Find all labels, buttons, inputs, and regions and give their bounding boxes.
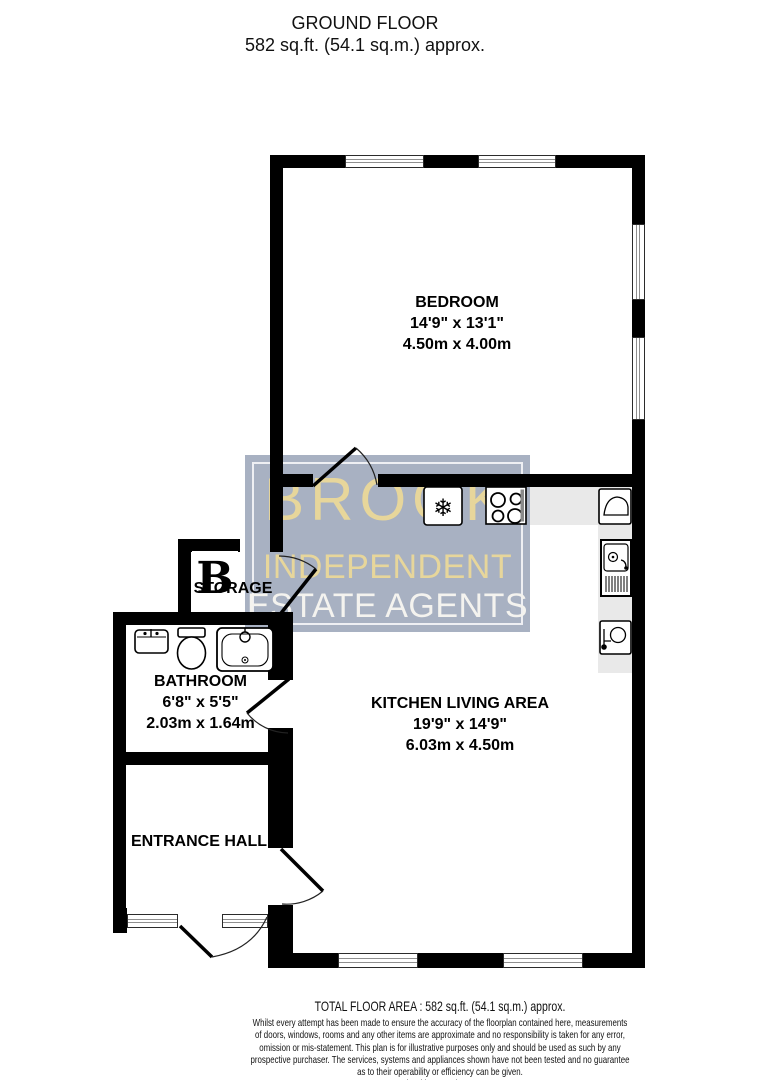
window-hall-bottom-1 [127, 914, 178, 928]
window-bedroom-top-1 [345, 155, 424, 168]
watermark-brand-word: INDEPENDENT [245, 548, 530, 586]
room-name: BEDROOM [357, 292, 557, 313]
bathroom-label: BATHROOM 6'8" x 5'5" 2.03m x 1.64m [103, 671, 298, 734]
total-floor-area: TOTAL FLOOR AREA : 582 sq.ft. (54.1 sq.m… [178, 998, 703, 1015]
window-bedroom-right-1 [632, 224, 645, 300]
bedroom-label: BEDROOM 14'9" x 13'1" 4.50m x 4.00m [357, 292, 557, 355]
wall-bedroom-top [270, 155, 645, 168]
room-name: ENTRANCE HALL [99, 831, 299, 852]
bathroom-sink-icon [135, 629, 168, 653]
plan-footer: TOTAL FLOOR AREA : 582 sq.ft. (54.1 sq.m… [178, 998, 703, 1080]
room-dims-metric: 6.03m x 4.50m [335, 735, 585, 756]
wall-bedroom-left [270, 155, 283, 552]
room-dims-imperial: 6'8" x 5'5" [103, 692, 298, 713]
window-hall-bottom-2 [222, 914, 268, 928]
wall-kitchen-bottom [268, 953, 645, 968]
page-title: GROUND FLOOR [65, 12, 665, 34]
window-bedroom-right-2 [632, 337, 645, 420]
window-kitchen-bottom-1 [338, 953, 418, 968]
hall-kitchen-door [281, 849, 323, 904]
window-kitchen-bottom-2 [503, 953, 583, 968]
room-dims-metric: 4.50m x 4.00m [357, 334, 557, 355]
room-name: BATHROOM [103, 671, 298, 692]
room-dims-metric: 2.03m x 1.64m [103, 713, 298, 734]
plan-header: GROUND FLOOR 582 sq.ft. (54.1 sq.m.) app… [65, 12, 665, 56]
bathtub-icon [217, 628, 273, 671]
wall-bathroom-right-upper [268, 612, 293, 680]
wall-hall-top [113, 752, 293, 765]
page-subtitle: 582 sq.ft. (54.1 sq.m.) approx. [65, 34, 665, 56]
kitchen-living-label: KITCHEN LIVING AREA 19'9" x 14'9" 6.03m … [335, 693, 585, 756]
room-dims-imperial: 14'9" x 13'1" [357, 313, 557, 334]
storage-label: STORAGE [183, 578, 283, 599]
wall-hall-bottom-corner [113, 908, 127, 933]
watermark-brand-name: BROOK [245, 455, 530, 545]
room-dims-imperial: 19'9" x 14'9" [335, 714, 585, 735]
room-name: KITCHEN LIVING AREA [335, 693, 585, 714]
wall-bathroom-top [113, 612, 278, 625]
disclaimer-text: Whilst every attempt has been made to en… [178, 1017, 703, 1078]
wall-bedroom-bottom-stub [283, 474, 313, 487]
window-bedroom-top-2 [478, 155, 556, 168]
wall-bedroom-bottom [378, 474, 632, 487]
room-name: STORAGE [183, 578, 283, 599]
toilet-icon [178, 628, 206, 669]
entrance-hall-label: ENTRANCE HALL [99, 831, 299, 852]
kitchen-worktop-right [598, 487, 632, 673]
floorplan-page: GROUND FLOOR 582 sq.ft. (54.1 sq.m.) app… [0, 0, 758, 1080]
